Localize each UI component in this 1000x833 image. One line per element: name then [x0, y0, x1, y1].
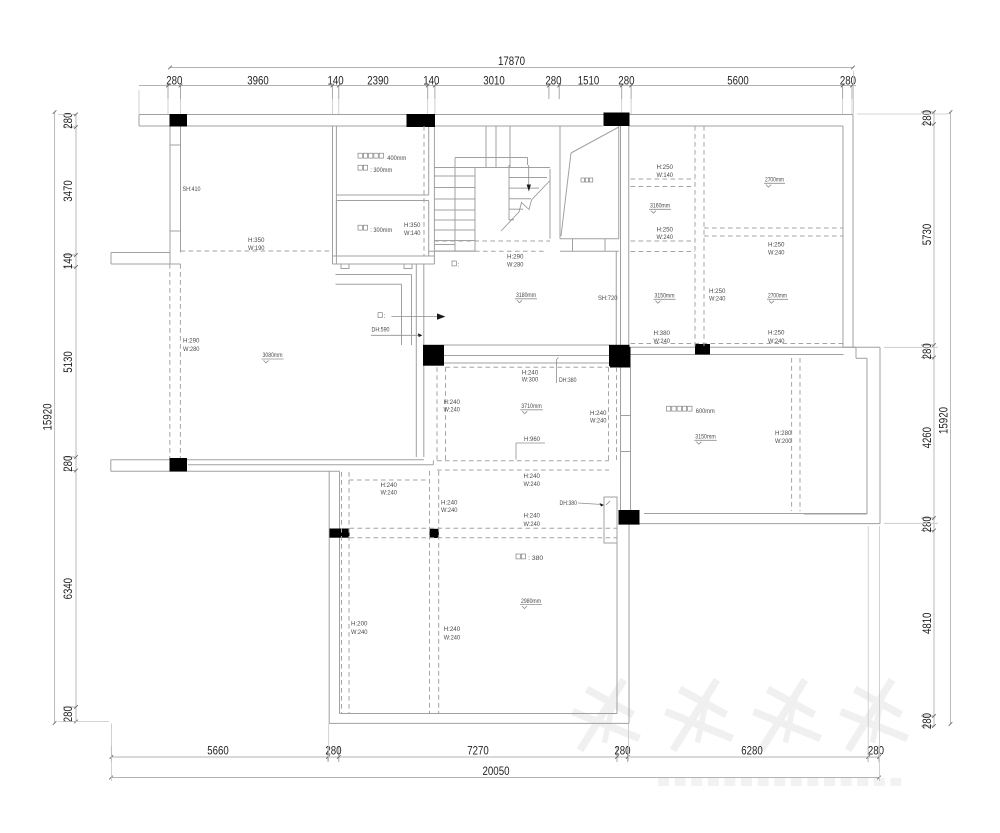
svg-text:H:240: H:240 [444, 626, 461, 633]
svg-text:20050: 20050 [483, 764, 510, 778]
svg-text:3150mm: 3150mm [695, 434, 715, 441]
svg-text:17870: 17870 [498, 54, 525, 68]
svg-text:H:200: H:200 [351, 621, 368, 628]
svg-text:6340: 6340 [61, 578, 75, 600]
svg-text:H:240: H:240 [441, 500, 458, 507]
svg-text:H:280: H:280 [775, 430, 792, 437]
svg-text:1510: 1510 [578, 74, 600, 88]
svg-text:3180mm: 3180mm [516, 292, 536, 299]
svg-text:280: 280 [920, 110, 934, 126]
svg-text:W:240: W:240 [441, 507, 458, 514]
svg-text:280: 280 [325, 744, 341, 758]
svg-text:W:240: W:240 [654, 338, 671, 345]
svg-text:W:190: W:190 [248, 245, 265, 252]
svg-text:600mm: 600mm [696, 408, 715, 415]
svg-text:W:240: W:240 [768, 250, 785, 257]
svg-text:280: 280 [61, 455, 75, 471]
svg-text:H:290: H:290 [183, 338, 200, 345]
svg-text:H:250: H:250 [768, 242, 785, 249]
svg-text:280: 280 [920, 516, 934, 532]
svg-text:280: 280 [920, 713, 934, 729]
svg-text:2700mm: 2700mm [765, 177, 784, 184]
svg-text:H:240: H:240 [444, 399, 461, 406]
svg-text:5600: 5600 [727, 74, 749, 88]
svg-text:H:350: H:350 [404, 222, 421, 229]
svg-text:2980mm: 2980mm [521, 598, 541, 605]
svg-text::: : [384, 313, 386, 320]
svg-text:2390: 2390 [367, 74, 389, 88]
svg-text:H:250: H:250 [657, 227, 674, 234]
svg-text:400mm: 400mm [387, 155, 406, 162]
svg-text:W:240: W:240 [590, 418, 607, 425]
svg-text:DH:590: DH:590 [372, 327, 390, 334]
svg-text:7270: 7270 [467, 744, 489, 758]
svg-text:W:240: W:240 [444, 407, 461, 414]
svg-text:280: 280 [61, 706, 75, 722]
svg-text:280: 280 [545, 74, 561, 88]
svg-text:W:280: W:280 [183, 346, 200, 353]
svg-text:5660: 5660 [207, 744, 229, 758]
svg-text:3960: 3960 [247, 74, 269, 88]
svg-text:W:240: W:240 [657, 234, 674, 241]
svg-text:15920: 15920 [41, 403, 55, 430]
svg-text:W:240: W:240 [524, 481, 541, 488]
svg-text:H:240: H:240 [381, 482, 398, 489]
svg-text:W:280: W:280 [507, 262, 524, 269]
svg-text:280: 280 [920, 343, 934, 359]
svg-text:3710mm: 3710mm [521, 403, 542, 410]
svg-text:3010: 3010 [483, 74, 505, 88]
svg-text:4810: 4810 [920, 612, 934, 634]
svg-text:280: 280 [61, 112, 75, 128]
svg-text:280: 280 [868, 744, 884, 758]
svg-text:W:200: W:200 [775, 438, 792, 445]
svg-text:3160mm: 3160mm [650, 203, 670, 210]
svg-text:H:240: H:240 [522, 370, 539, 377]
svg-text:280: 280 [618, 74, 634, 88]
svg-text:2700mm: 2700mm [768, 293, 787, 300]
svg-text:3080mm: 3080mm [263, 352, 283, 359]
svg-text:W:300: W:300 [522, 377, 539, 384]
svg-text:W:240: W:240 [524, 521, 541, 528]
svg-text:5730: 5730 [920, 224, 934, 246]
svg-text:DH:380: DH:380 [560, 500, 578, 507]
svg-text::: : [458, 262, 460, 269]
svg-text:3470: 3470 [61, 180, 75, 202]
svg-text:H:250: H:250 [768, 330, 785, 337]
svg-text:W:240: W:240 [768, 338, 785, 345]
svg-text:W:240: W:240 [444, 635, 461, 642]
svg-text:140: 140 [328, 74, 344, 88]
svg-text:15920: 15920 [937, 407, 951, 434]
svg-text:W:240: W:240 [351, 629, 368, 636]
svg-text:: 300mm: : 300mm [370, 227, 392, 234]
svg-text:H:380: H:380 [654, 330, 671, 337]
svg-text:W:240: W:240 [381, 490, 398, 497]
svg-text:: 380: : 380 [528, 555, 543, 562]
svg-text:H:290: H:290 [507, 254, 524, 261]
svg-text:SH:720: SH:720 [598, 295, 618, 302]
svg-text:140: 140 [61, 253, 75, 269]
svg-text:5130: 5130 [61, 351, 75, 373]
svg-text:DH:380: DH:380 [559, 377, 577, 384]
svg-text:H:350: H:350 [248, 237, 265, 244]
svg-text:H:250: H:250 [709, 288, 726, 295]
svg-text:H:240: H:240 [524, 513, 541, 520]
svg-text:4260: 4260 [920, 427, 934, 449]
svg-text:H:240: H:240 [590, 410, 607, 417]
svg-text:H:960: H:960 [524, 436, 540, 443]
svg-text:SH:410: SH:410 [183, 186, 201, 193]
svg-text:W:240: W:240 [709, 296, 726, 303]
svg-text:6280: 6280 [741, 744, 763, 758]
svg-text:W:140: W:140 [404, 230, 421, 237]
svg-text:140: 140 [423, 74, 439, 88]
svg-text:H:250: H:250 [657, 164, 674, 171]
svg-text:W:140: W:140 [657, 172, 674, 179]
svg-text:280: 280 [166, 74, 182, 88]
svg-text:: 300mm: : 300mm [370, 167, 392, 174]
svg-text:H:240: H:240 [524, 473, 541, 480]
svg-text:3150mm: 3150mm [655, 293, 675, 300]
